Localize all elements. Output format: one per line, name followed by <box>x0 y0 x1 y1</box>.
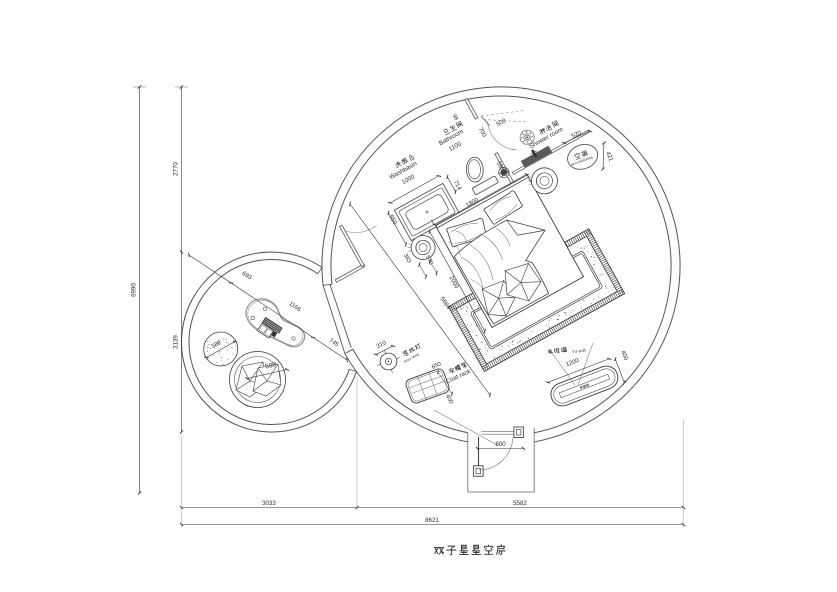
svg-text:3139: 3139 <box>173 335 180 349</box>
svg-text:8621: 8621 <box>425 517 439 524</box>
svg-text:2770: 2770 <box>173 162 180 176</box>
svg-text:3033: 3033 <box>262 500 276 507</box>
svg-text:5582: 5582 <box>513 500 527 507</box>
svg-text:800: 800 <box>495 441 506 448</box>
svg-text:6990: 6990 <box>131 283 138 297</box>
